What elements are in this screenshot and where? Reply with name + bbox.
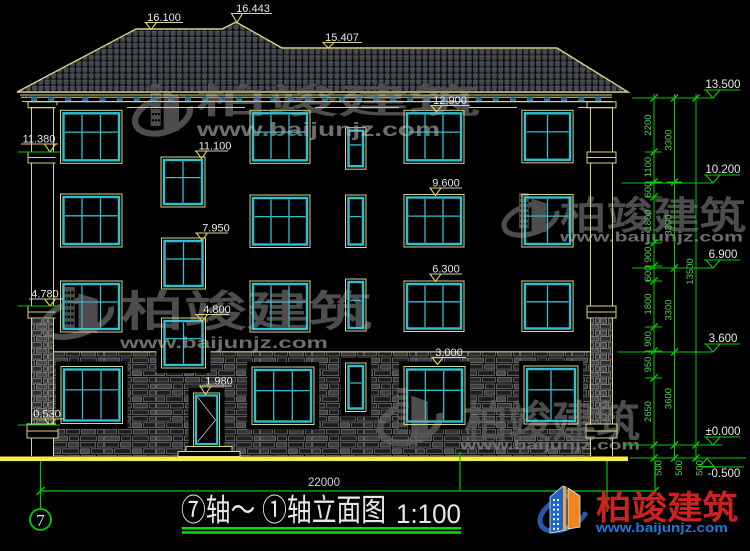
svg-text:2200: 2200 — [643, 114, 654, 135]
svg-text:3300: 3300 — [664, 214, 675, 235]
svg-text:900: 900 — [643, 331, 654, 347]
svg-text:10.200: 10.200 — [705, 164, 740, 176]
svg-text:900: 900 — [643, 247, 654, 263]
svg-text:1800: 1800 — [643, 209, 654, 230]
svg-text:1100: 1100 — [643, 157, 654, 177]
svg-text:±0.000: ±0.000 — [705, 426, 740, 438]
svg-text:www.baijunjz.com: www.baijunjz.com — [558, 230, 743, 245]
svg-text:www.baijunjz.com: www.baijunjz.com — [595, 520, 728, 535]
svg-text:22000: 22000 — [308, 477, 340, 489]
svg-text:6.900: 6.900 — [709, 249, 738, 261]
svg-text:13500: 13500 — [685, 258, 696, 284]
svg-text:www.baijunjz.com: www.baijunjz.com — [118, 335, 328, 352]
svg-text:7: 7 — [36, 511, 45, 530]
svg-text:3600: 3600 — [664, 388, 675, 409]
svg-text:⑦轴〜 ①轴立面图: ⑦轴〜 ①轴立面图 — [181, 493, 386, 528]
svg-text:600: 600 — [643, 182, 654, 198]
svg-text:www.baijunjz.com: www.baijunjz.com — [459, 437, 640, 453]
svg-text:950: 950 — [643, 357, 654, 373]
svg-text:3300: 3300 — [664, 129, 675, 150]
svg-text:500: 500 — [674, 460, 685, 476]
svg-text:柏竣建筑: 柏竣建筑 — [121, 288, 372, 335]
svg-text:3300: 3300 — [664, 299, 675, 320]
svg-text:3.600: 3.600 — [709, 333, 738, 345]
svg-text:-0.500: -0.500 — [708, 468, 741, 480]
svg-text:1800: 1800 — [643, 293, 654, 314]
svg-text:13.500: 13.500 — [705, 79, 740, 91]
svg-text:1:100: 1:100 — [396, 499, 461, 529]
svg-text:2650: 2650 — [643, 401, 654, 422]
svg-text:www.baijunjz.com: www.baijunjz.com — [196, 120, 440, 141]
